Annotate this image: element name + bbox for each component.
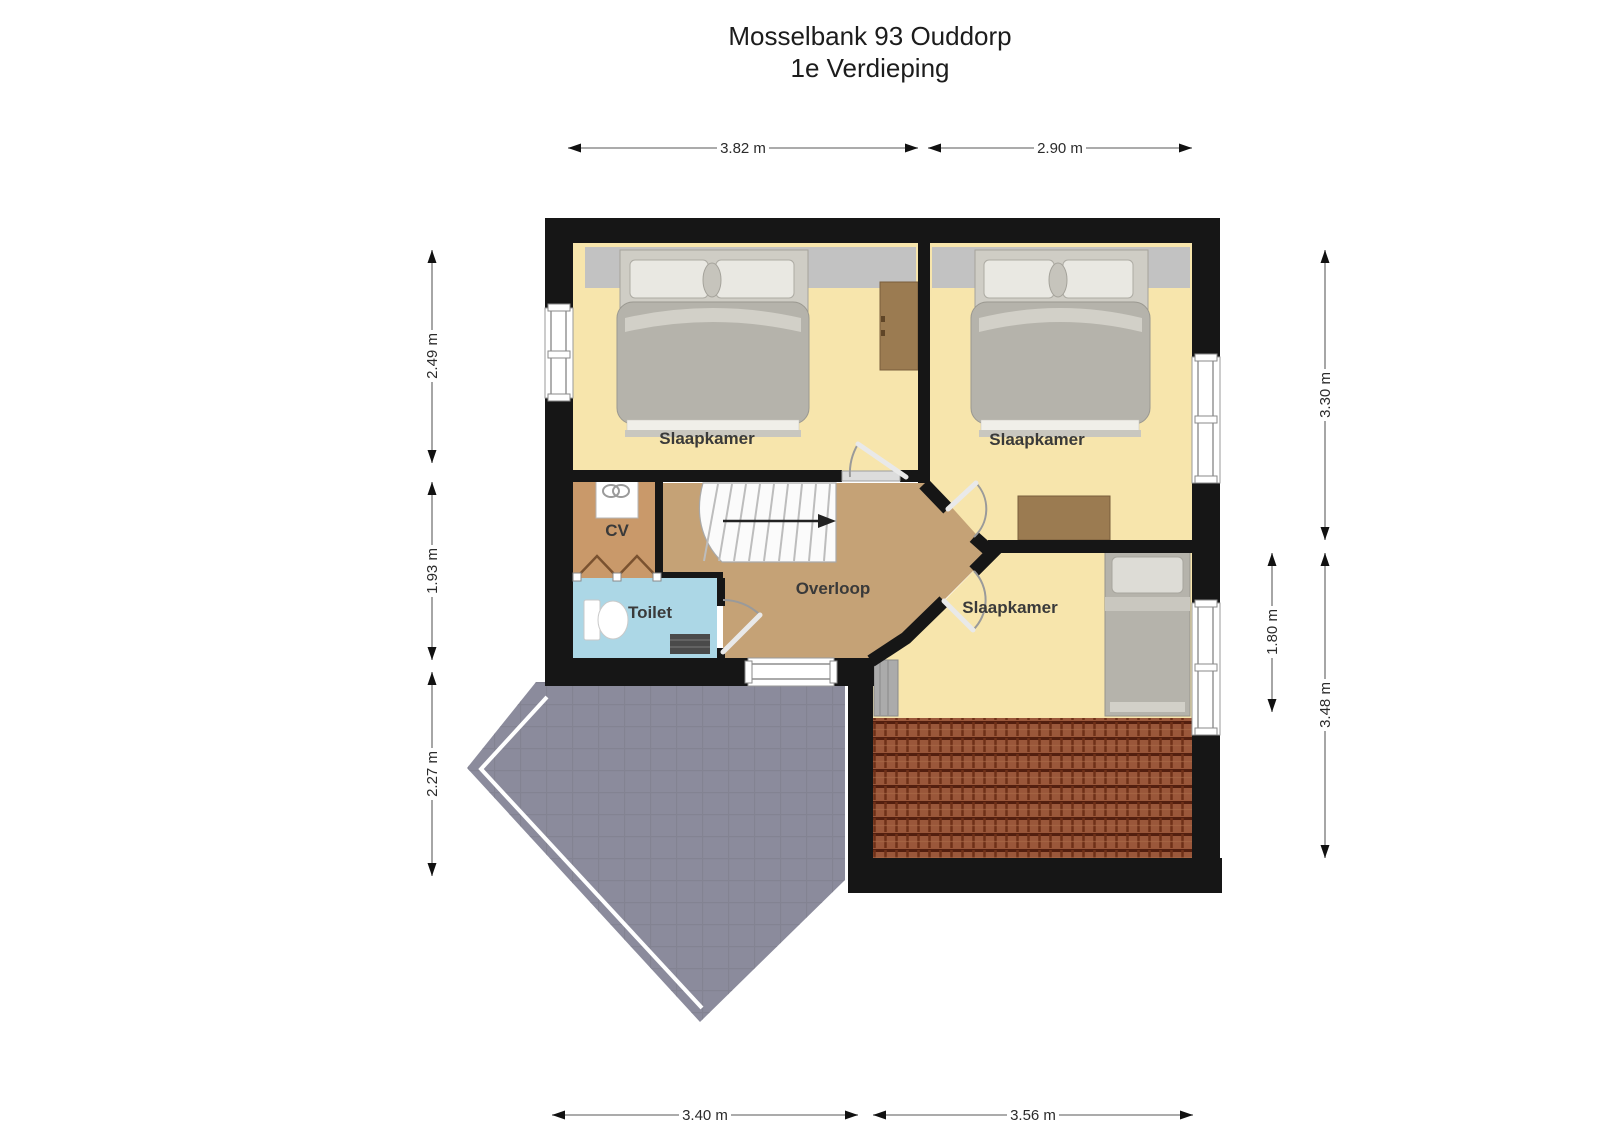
floorplan-canvas: Mosselbank 93 Ouddorp 1e Verdieping (0, 0, 1600, 1143)
single-bed (1105, 550, 1190, 716)
balcony-texture (467, 682, 845, 1022)
wall-bottom-right (848, 858, 1222, 893)
dim-top-right: 2.90 m (928, 139, 1192, 157)
balcony (467, 682, 849, 1028)
double-bed-right (971, 250, 1150, 437)
svg-text:3.40 m: 3.40 m (682, 1107, 728, 1124)
window-right-bedroom-bottom (1192, 600, 1220, 735)
wall-bedroom2-3-divider (988, 540, 1192, 553)
double-bed-left (617, 250, 809, 437)
svg-text:3.30 m: 3.30 m (1317, 372, 1334, 418)
dim-right-inner: 1.80 m (1263, 553, 1281, 712)
toilet-fixture (584, 600, 628, 640)
wall-toilet-right-a (717, 578, 725, 606)
wall-middle-top-a (573, 470, 842, 482)
window-right-bedroom-top (1192, 354, 1220, 483)
dim-left-bottom: 2.27 m (423, 672, 441, 876)
wall-bedroom-divider (918, 243, 930, 483)
plan-subtitle-floor: 1e Verdieping (790, 53, 949, 83)
window-left-wall (545, 304, 573, 401)
dim-top-left: 3.82 m (568, 139, 918, 157)
dim-bottom-right: 3.56 m (873, 1106, 1193, 1124)
label-bedroom-bottom-right: Slaapkamer (962, 598, 1058, 617)
wall-top (545, 218, 1220, 243)
svg-text:3.48 m: 3.48 m (1317, 682, 1334, 728)
plan-title: Mosselbank 93 Ouddorp (728, 21, 1011, 51)
radiator-toilet (670, 634, 710, 654)
wall-toilet-top (655, 572, 723, 578)
radiator-bedroom (874, 660, 898, 716)
svg-text:2.49 m: 2.49 m (424, 333, 441, 379)
wall-right-upper (1192, 218, 1220, 357)
svg-text:3.56 m: 3.56 m (1010, 1107, 1056, 1124)
dim-left-middle: 1.93 m (423, 482, 441, 660)
wall-bottom-left-a (545, 658, 748, 686)
label-bedroom-top-left: Slaapkamer (659, 429, 755, 448)
svg-text:2.27 m: 2.27 m (424, 751, 441, 797)
desk-top-right-bedroom (1018, 496, 1110, 540)
svg-text:1.80 m: 1.80 m (1264, 609, 1281, 655)
label-overloop: Overloop (796, 579, 871, 598)
balcony-door-window (745, 658, 837, 686)
dim-bottom-left: 3.40 m (552, 1106, 858, 1124)
desk-top-left-bedroom (880, 282, 918, 370)
cv-boiler (596, 476, 638, 518)
dim-right-top: 3.30 m (1316, 250, 1334, 540)
label-cv: CV (605, 521, 629, 540)
label-bedroom-top-right: Slaapkamer (989, 430, 1085, 449)
floorplan-page: Mosselbank 93 Ouddorp 1e Verdieping (0, 0, 1600, 1143)
dim-right-bottom: 3.48 m (1316, 553, 1334, 858)
dim-left-top: 2.49 m (423, 250, 441, 463)
roof-tiles-area (873, 718, 1192, 862)
staircase (699, 483, 836, 562)
svg-text:1.93 m: 1.93 m (424, 548, 441, 594)
wall-left-upper (545, 218, 573, 308)
wall-left-lower (545, 398, 573, 686)
wall-right-middle (1192, 483, 1220, 603)
label-toilet: Toilet (628, 603, 672, 622)
svg-text:2.90 m: 2.90 m (1037, 140, 1083, 157)
wall-cv-right (655, 480, 663, 578)
svg-text:3.82 m: 3.82 m (720, 140, 766, 157)
wall-lower-part-left (848, 658, 873, 863)
